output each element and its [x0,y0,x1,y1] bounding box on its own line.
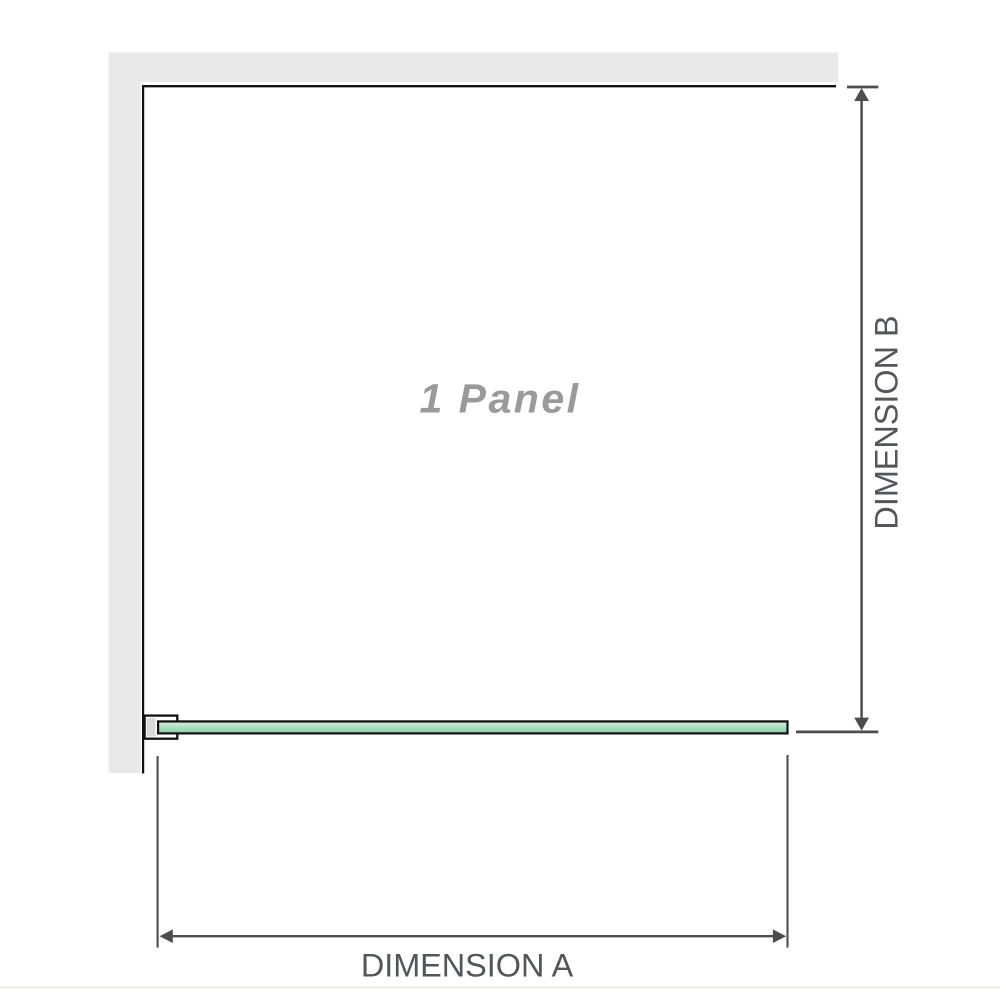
svg-text:DIMENSION B: DIMENSION B [869,315,905,529]
svg-text:1 Panel: 1 Panel [419,375,580,421]
svg-text:DIMENSION A: DIMENSION A [361,948,574,984]
